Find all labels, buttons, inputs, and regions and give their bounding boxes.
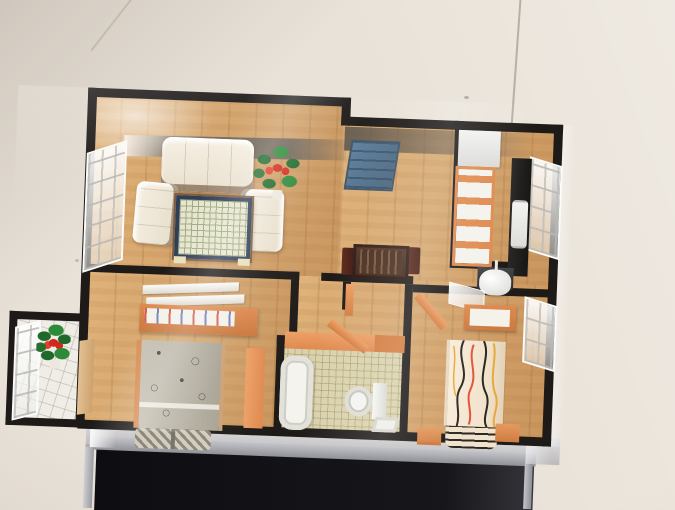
balcony-door <box>77 339 95 415</box>
floor-speck <box>464 96 469 99</box>
kitchen-orange-cabinets <box>452 166 496 267</box>
bed-striped-blanket <box>444 340 506 428</box>
blue-panel <box>344 140 401 192</box>
display-stand-leg <box>83 444 94 508</box>
bed-floral-blanket <box>133 340 225 431</box>
floor-tile-seam <box>91 0 148 51</box>
nightstand <box>417 427 442 446</box>
kitchen-window <box>526 156 562 260</box>
bathroom-sink <box>371 417 399 433</box>
apartment-model <box>75 88 564 447</box>
bed-footboard <box>445 426 498 450</box>
bedroom-right-window <box>522 296 557 372</box>
checkered-pillows <box>135 428 212 451</box>
armchair-left <box>132 181 179 247</box>
orange-bench <box>243 348 265 429</box>
bathtub <box>278 355 314 430</box>
orange-dresser <box>463 304 516 331</box>
blanket-pattern <box>447 340 506 428</box>
dining-chair <box>407 247 420 274</box>
balcony-plant <box>36 324 72 365</box>
potted-plant <box>252 144 302 196</box>
photo-scene <box>0 0 675 510</box>
living-room-window <box>82 140 127 273</box>
kitchen-upper-cabinet <box>458 130 501 168</box>
hall-door <box>345 284 354 316</box>
floor-speck <box>75 259 79 262</box>
toilet-tank <box>372 383 387 420</box>
coffee-table <box>174 195 252 261</box>
nightstand <box>495 424 520 443</box>
kitchen-sink <box>511 200 529 249</box>
dining-table <box>352 244 409 280</box>
